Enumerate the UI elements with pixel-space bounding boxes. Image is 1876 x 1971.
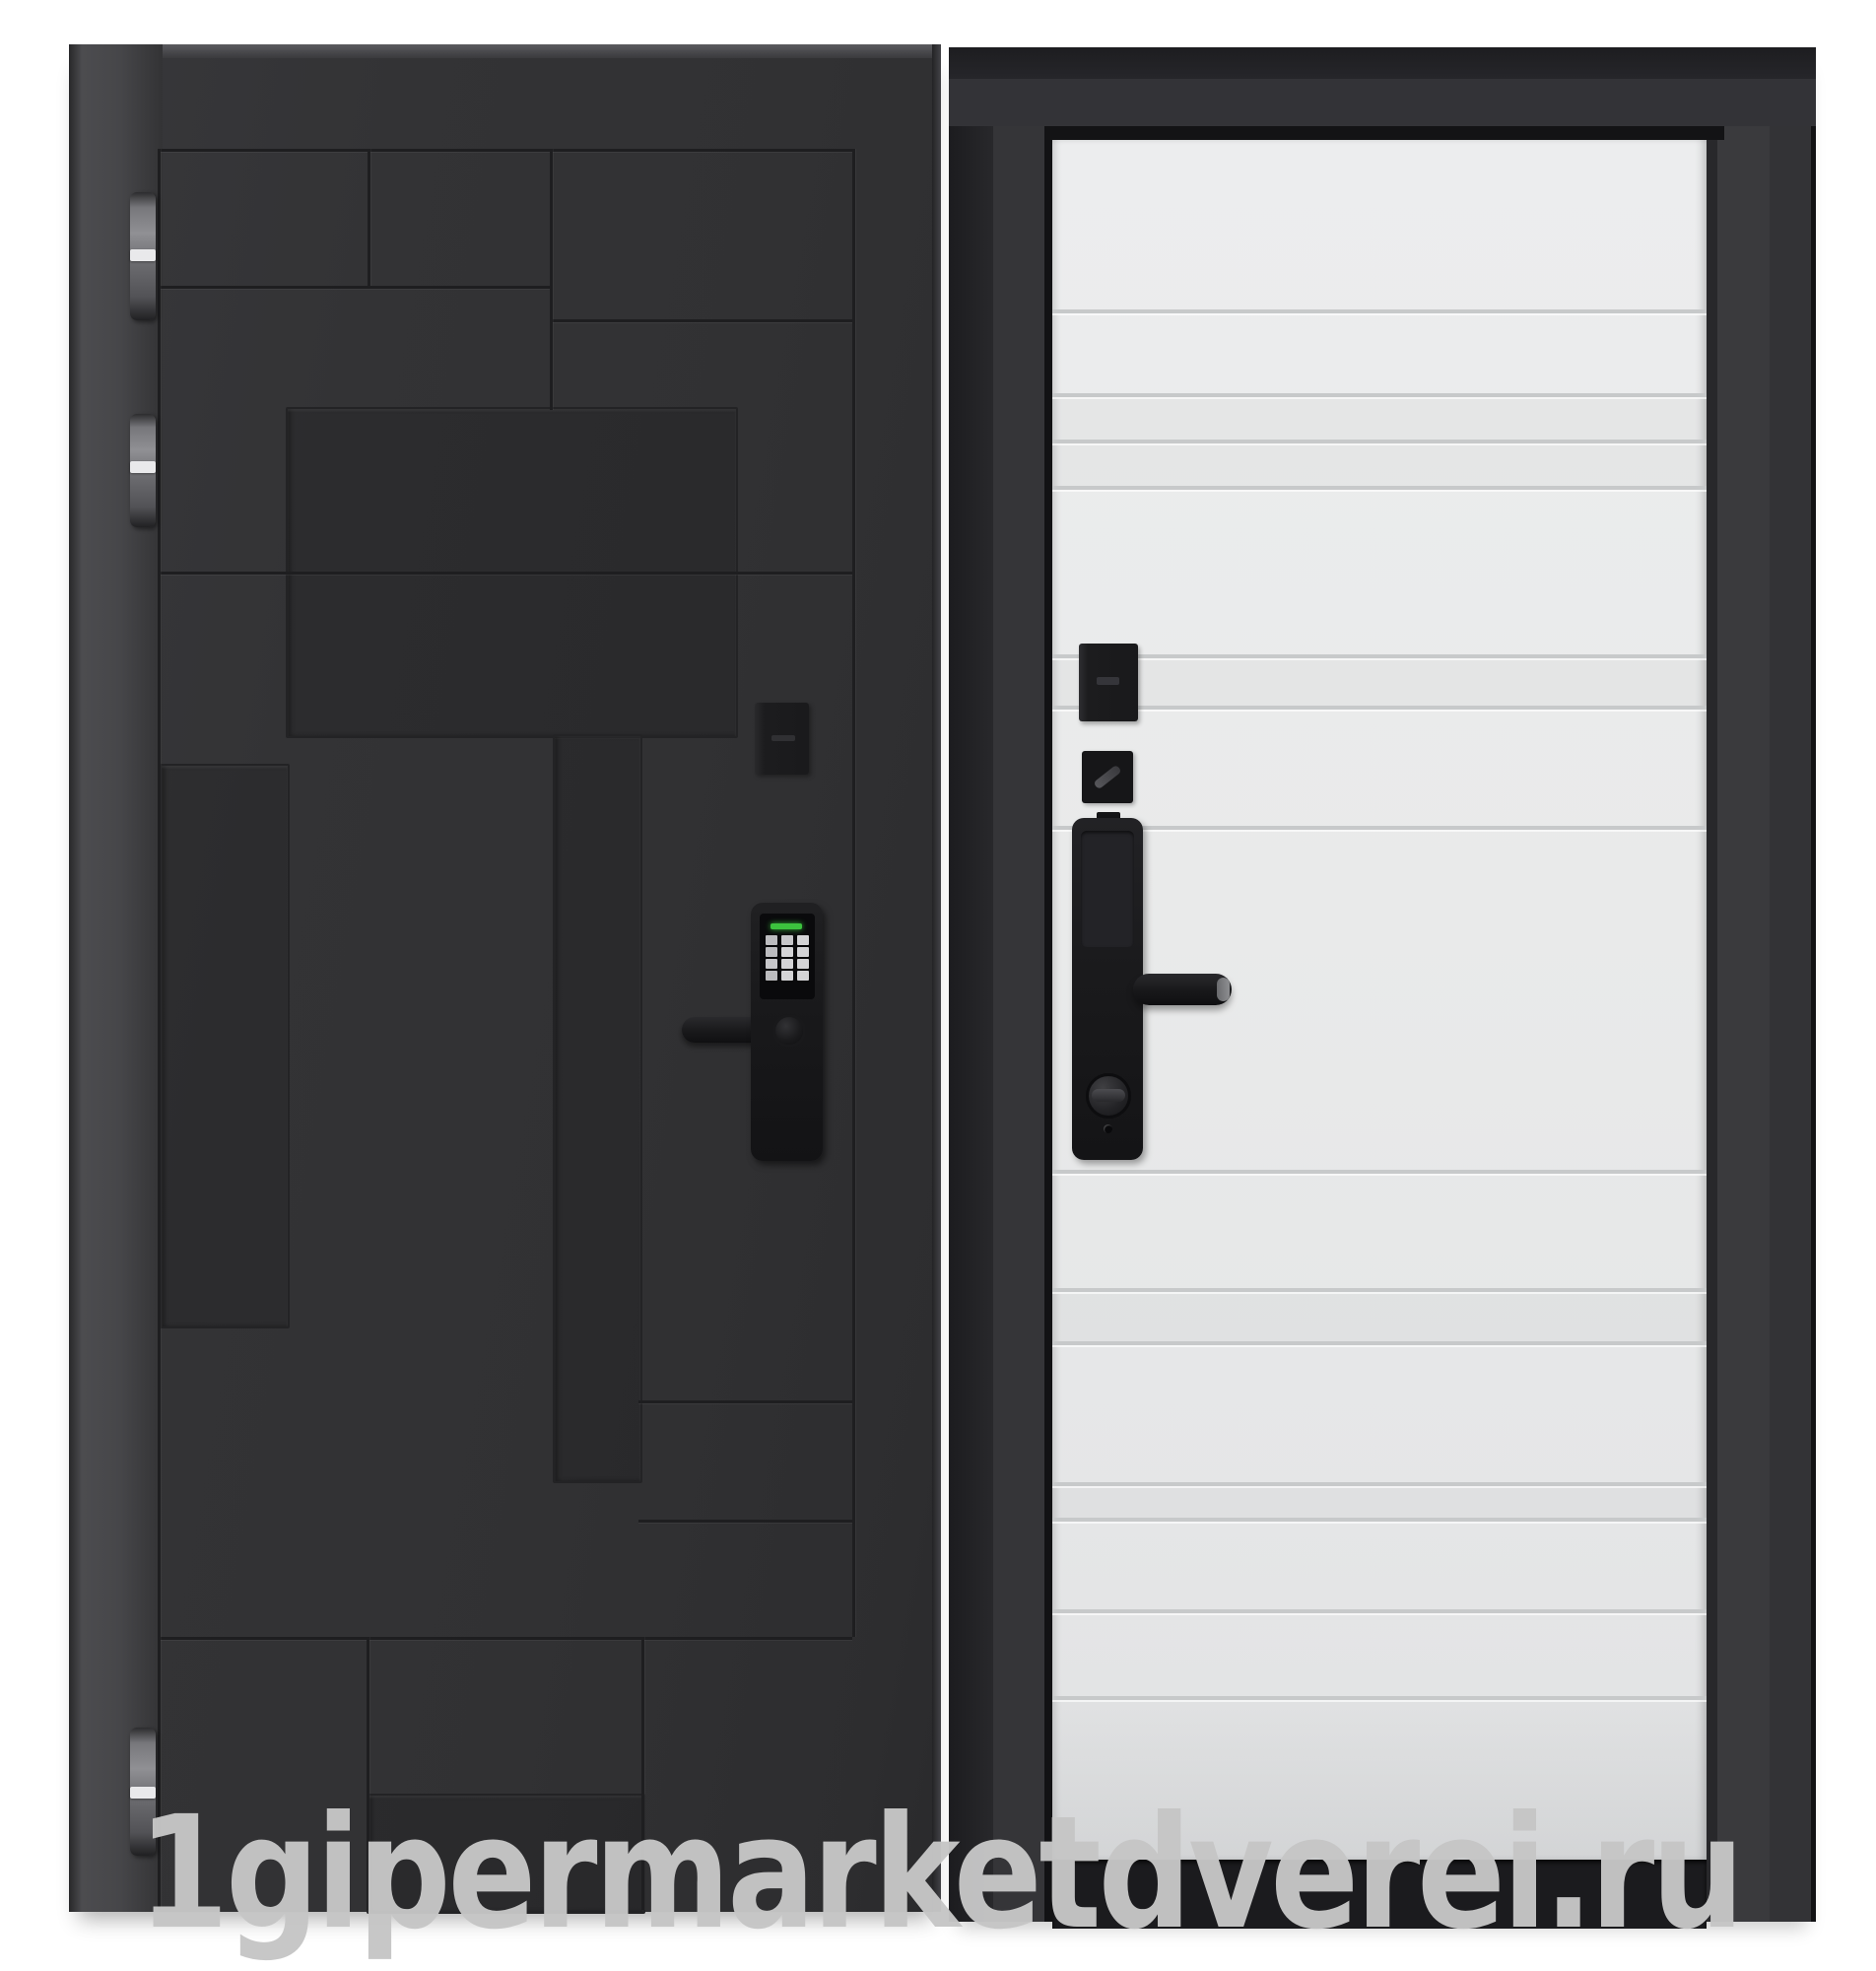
panel-groove: [158, 149, 852, 152]
frame-outer-band: [949, 47, 1816, 79]
frame-reveal-shadow: [1044, 126, 1724, 140]
panel-groove: [638, 1400, 852, 1403]
recessed-panel: [553, 734, 642, 1483]
frame-outer-band: [1770, 47, 1811, 1922]
panel-groove: [638, 1520, 852, 1523]
panel-band: [1052, 1482, 1707, 1518]
door-hinge: [130, 192, 156, 320]
leaf-groove: [1052, 309, 1707, 313]
keypad-key: [797, 947, 809, 957]
leaf-groove: [1052, 1696, 1707, 1700]
keyhole-slot: [1093, 765, 1121, 790]
door-hinge: [130, 414, 156, 527]
panel-band: [1052, 1288, 1707, 1341]
keypad-key: [781, 959, 793, 969]
frame-outer-band: [949, 47, 993, 1922]
interior-door-frame: [949, 47, 1816, 1922]
smart-lock-keypad: [766, 935, 809, 992]
hinge-knuckle-highlight: [130, 249, 156, 261]
leaf-groove: [1052, 1482, 1707, 1486]
panel-groove: [158, 286, 550, 289]
status-led: [770, 923, 802, 929]
card-slot: [1097, 677, 1119, 685]
leaf-groove: [1052, 440, 1707, 443]
keypad-key: [766, 947, 777, 957]
keypad-key: [766, 971, 777, 981]
door-right-edge: [932, 44, 941, 1912]
exterior-door-leaf: [69, 44, 941, 1912]
leaf-groove: [1052, 486, 1707, 490]
keypad-key: [781, 947, 793, 957]
panel-groove: [158, 1637, 852, 1640]
leaf-groove: [1052, 1288, 1707, 1292]
keypad-key: [766, 935, 777, 945]
hinge-side-stile: [69, 44, 163, 1912]
door-handle-lever: [1133, 974, 1232, 1005]
frame-face: [1717, 47, 1770, 1922]
thumbturn-knob: [1086, 1073, 1131, 1119]
recessed-panel: [160, 764, 290, 1328]
frame-edge: [1811, 47, 1816, 1922]
panel-groove: [158, 572, 852, 575]
keypad-key: [797, 971, 809, 981]
screw: [1104, 1124, 1112, 1133]
panel-groove: [852, 149, 855, 1637]
panel-groove: [550, 319, 852, 322]
keypad-key: [797, 959, 809, 969]
keypad-key: [797, 935, 809, 945]
keypad-key: [781, 935, 793, 945]
watermark: 1gipermarketdverei.ru: [138, 1796, 1741, 1951]
panel-groove: [158, 149, 161, 1910]
leaf-groove: [1052, 826, 1707, 830]
interior-door-leaf: [1052, 140, 1707, 1860]
backplate-recess: [1081, 831, 1134, 947]
panel-groove: [368, 149, 370, 286]
card-slot: [771, 735, 795, 741]
keypad-key: [781, 971, 793, 981]
frame-face: [949, 79, 1816, 126]
lever-tip-highlight: [1217, 978, 1230, 1001]
key-card-reader: [755, 703, 809, 775]
door-product-photo: 1gipermarketdverei.ru: [0, 0, 1876, 1971]
door-top-edge-highlight: [69, 44, 941, 58]
fingerprint-sensor: [772, 1014, 806, 1048]
leaf-groove: [1052, 1170, 1707, 1174]
leaf-groove: [1052, 1609, 1707, 1613]
leaf-groove: [1052, 654, 1707, 658]
keypad-key: [766, 959, 777, 969]
smart-lock-display: [760, 914, 815, 999]
hinge-knuckle-highlight: [130, 461, 156, 473]
panel-groove: [550, 149, 553, 410]
frame-reveal-shadow: [1044, 47, 1052, 1922]
leaf-groove: [1052, 706, 1707, 710]
leaf-groove: [1052, 1518, 1707, 1522]
panel-band: [1052, 654, 1707, 706]
frame-face: [993, 47, 1044, 1922]
key-card-reader: [1079, 644, 1138, 721]
keyhole-cover: [1082, 751, 1133, 803]
leaf-groove: [1052, 393, 1707, 397]
thumbturn-bar: [1092, 1089, 1125, 1102]
leaf-groove: [1052, 1341, 1707, 1345]
